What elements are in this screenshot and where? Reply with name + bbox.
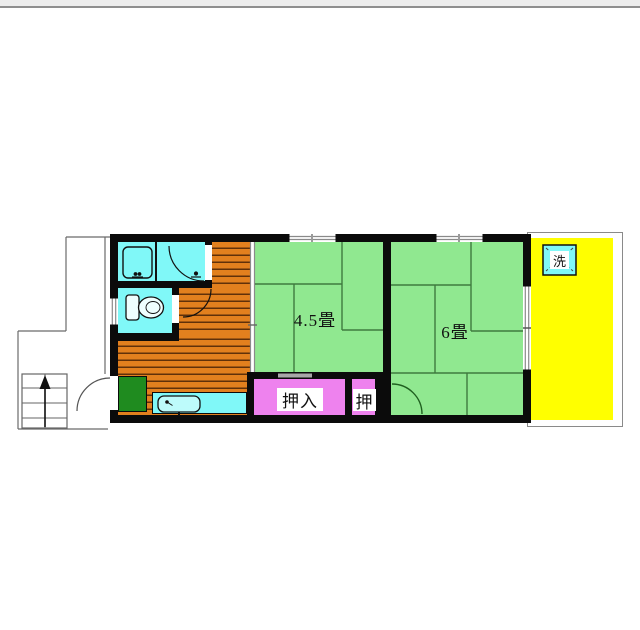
wall-closet-right <box>375 372 383 415</box>
room-4-5-label: 4.5畳 <box>270 306 360 331</box>
wall-closet-top <box>247 372 391 379</box>
wall-bottom <box>110 415 531 423</box>
room-6-label: 6畳 <box>415 318 495 343</box>
laundry-label: 洗 <box>550 251 569 269</box>
staircase <box>22 374 67 428</box>
genkan-mat <box>118 376 147 412</box>
wall-bathroom-right <box>205 234 212 288</box>
wall-right-balcony <box>523 234 531 423</box>
closet-oshiire-label: 押入 <box>277 388 323 411</box>
page-top-border-line <box>0 6 640 8</box>
wall-left <box>110 234 118 423</box>
wall-toilet-bottom <box>110 333 179 341</box>
wall-between-closets <box>345 372 352 415</box>
balcony-deck <box>530 238 613 420</box>
closet-oshi-label: 押 <box>353 389 376 411</box>
kitchen-floor-middle <box>179 288 250 333</box>
kitchen-floor-top <box>212 242 250 288</box>
corridor-outline <box>18 237 110 429</box>
wall-below-bathroom <box>110 281 212 288</box>
entrance-door-arc <box>77 378 110 411</box>
kitchen-counter <box>152 392 247 414</box>
bathroom <box>118 242 205 281</box>
toilet-room <box>118 288 172 333</box>
wall-between-rooms <box>383 234 391 423</box>
wall-top <box>110 234 531 242</box>
up-arrow-icon <box>40 375 51 427</box>
floor-plan: 4.5畳 6畳 押入 押 洗 <box>0 0 640 630</box>
wall-closet-left <box>247 372 254 415</box>
